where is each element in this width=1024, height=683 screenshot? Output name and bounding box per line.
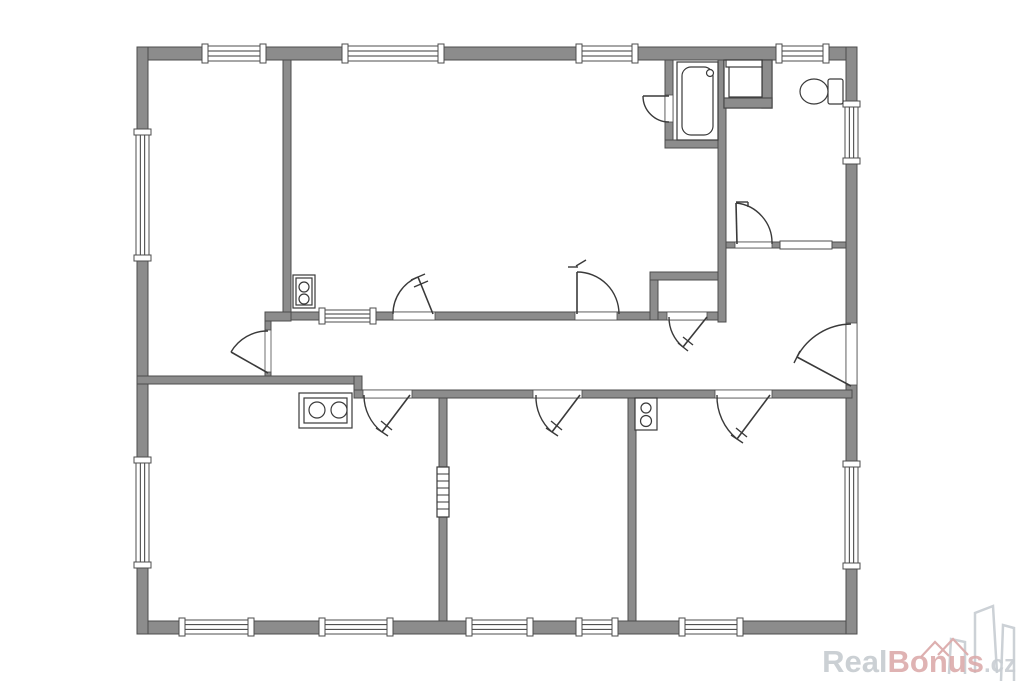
window-top-room1 [202,44,266,63]
window-right-room5 [843,461,860,569]
door-wc-room-leaf [736,203,737,244]
door-room2-b-arc [577,272,619,314]
shower [724,60,772,108]
window-bottom-kitchen-a [179,618,254,636]
wall-corridor-bottom-left [137,376,362,384]
door-kitchen [364,395,410,436]
door-room5-arc [717,395,737,439]
door-opening-room2-a [393,312,435,320]
window-top-room2-a [342,44,444,63]
water-heater [293,275,315,308]
window-top-room2-b [576,44,638,63]
door-room2-a-arc [393,277,418,314]
window-bottom-room4-b [576,618,618,636]
door-wc-room-arc [736,203,772,244]
window-right-wc-room [843,101,860,164]
door-room1-leaf [231,352,268,373]
door-opening-room2-b [575,312,617,320]
wall-divider-room4-room5 [628,398,636,621]
floor-plan-page: RealBonus.cz [0,0,1024,683]
floor-plan [0,0,1024,683]
wall-divider-room1-room2 [283,60,291,313]
door-room2-b [568,260,619,314]
door-opening-room1 [265,330,271,372]
wall-bathroom-bottom [665,140,726,148]
door-opening-bathroom [665,95,673,122]
window-top-wc-room [776,44,829,63]
window-left-kitchen [134,457,151,568]
wall-corridor-bottom-right [354,390,852,398]
window-bottom-kitchen-b [319,618,393,636]
door-opening-room5 [715,390,772,398]
watermark-real: Real [822,644,887,679]
watermark: RealBonus.cz [822,646,1016,677]
window-bottom-room5 [679,618,743,636]
watermark-bonus: Bonus [888,644,984,679]
door-closet [669,317,707,351]
bathtub [677,62,718,140]
door-closet-leaf [683,317,707,347]
stove [299,393,352,428]
door-opening-kitchen [363,390,412,398]
interior-window-hall-wc [780,241,832,249]
window-left-room1 [134,129,151,261]
vent-shaft [437,467,449,517]
entrance-door-arc [797,324,851,357]
door-opening-closet [667,312,707,320]
window-bottom-room4-a [466,618,533,636]
door-room4 [536,395,580,436]
door-room4-arc [536,395,552,432]
door-kitchen-leaf [382,395,410,432]
door-room2-a [393,274,433,314]
door-room1-arc [231,331,268,352]
door-room4-leaf [552,395,580,432]
door-room1 [231,331,268,373]
entrance-door [794,324,851,386]
wall-stub-above-door1 [265,321,271,330]
door-room5 [717,395,770,443]
door-wc-room [736,202,772,244]
wall-closet-top [650,272,718,280]
door-closet-arc [669,317,683,347]
appliance [635,398,657,430]
door-opening-wc-room [735,242,772,248]
wall-closet-left [650,280,658,320]
wall-jog-room1 [265,312,291,321]
entrance-door-leaf [797,357,851,386]
door-kitchen-arc [364,395,382,432]
toilet [800,79,843,104]
entrance-opening [846,323,857,385]
watermark-cz: .cz [984,651,1016,678]
door-opening-room4 [533,390,582,398]
interior-window-corridor [319,308,376,324]
